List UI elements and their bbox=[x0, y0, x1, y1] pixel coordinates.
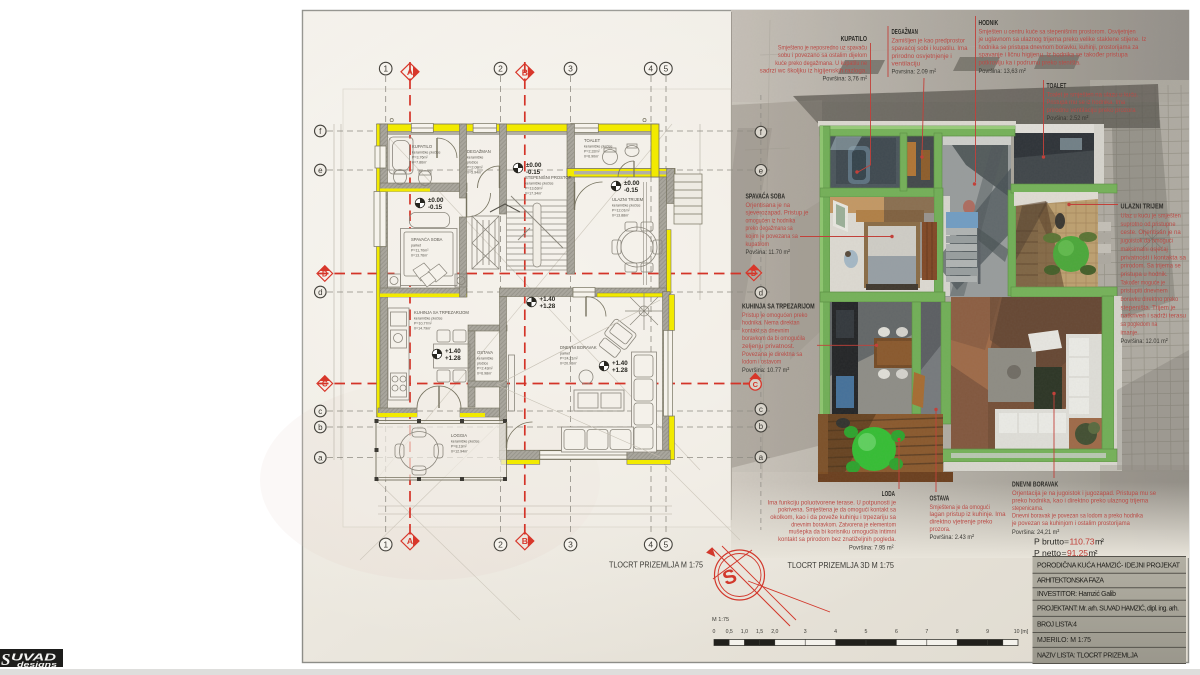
svg-text:Orjentacija je na jugoistok i: Orjentacija je na jugoistok i jugozapad.… bbox=[1012, 490, 1156, 497]
svg-text:preko hodnika, kao i direktno: preko hodnika, kao i direktno preko ulaz… bbox=[1012, 497, 1148, 504]
svg-text:DNEVNI BORAVAK: DNEVNI BORAVAK bbox=[1012, 480, 1059, 489]
svg-text:KUPATILO: KUPATILO bbox=[412, 144, 433, 149]
svg-text:4: 4 bbox=[834, 629, 837, 635]
svg-text:d: d bbox=[318, 288, 322, 297]
svg-text:LODA: LODA bbox=[882, 489, 896, 498]
svg-text:a: a bbox=[759, 453, 764, 462]
svg-text:m²: m² bbox=[1095, 537, 1104, 547]
svg-text:kupatilom: kupatilom bbox=[746, 241, 770, 248]
svg-text:boravkom da bi omogućila: boravkom da bi omogućila bbox=[742, 335, 805, 342]
svg-text:potkrovlju ka i podrumu preko: potkrovlju ka i podrumu preko steništa. bbox=[979, 60, 1081, 67]
svg-text:sa pogledom na: sa pogledom na bbox=[1121, 321, 1158, 328]
svg-text:±0.00: ±0.00 bbox=[428, 197, 444, 204]
svg-text:sobu i povezano sa ostalim dij: sobu i povezano sa ostalim dijelom bbox=[778, 52, 867, 59]
svg-text:stepenicama.: stepenicama. bbox=[1012, 505, 1043, 512]
svg-text:LOGGIA: LOGGIA bbox=[451, 433, 467, 438]
svg-text:jugoistok da omogući: jugoistok da omogući bbox=[1120, 238, 1174, 245]
svg-text:5: 5 bbox=[664, 540, 669, 550]
svg-text:pristupiti dnevnem: pristupiti dnevnem bbox=[1121, 288, 1168, 295]
svg-text:keramičke pločice: keramičke pločice bbox=[412, 150, 441, 154]
svg-text:0=12.94m': 0=12.94m' bbox=[451, 449, 468, 453]
svg-text:+1.28: +1.28 bbox=[612, 367, 628, 374]
svg-text:Površina: 2.43 m²: Površina: 2.43 m² bbox=[930, 534, 975, 541]
svg-text:prirodnu ventilaciju preko pro: prirodnu ventilaciju preko prozora bbox=[1047, 107, 1136, 114]
svg-text:0=6.90m': 0=6.90m' bbox=[584, 154, 599, 158]
svg-text:TLOCRT PRIZEMLJA 3D M 1:75: TLOCRT PRIZEMLJA 3D M 1:75 bbox=[788, 560, 895, 570]
svg-text:prozora.: prozora. bbox=[930, 526, 951, 533]
svg-text:c: c bbox=[318, 407, 322, 416]
svg-text:pločice: pločice bbox=[477, 361, 488, 365]
svg-text:pokrivena. Smještena je da omo: pokrivena. Smještena je da omogući konta… bbox=[778, 507, 896, 514]
svg-text:2: 2 bbox=[498, 64, 503, 74]
svg-text:Pristup je omogućen preko: Pristup je omogućen preko bbox=[742, 312, 808, 319]
svg-text:Površina: 12.01 m²: Površina: 12.01 m² bbox=[1121, 338, 1169, 345]
svg-text:B: B bbox=[522, 68, 528, 78]
svg-text:B: B bbox=[522, 536, 528, 546]
svg-text:PROJEKTANT: Mr. arh. SUVAD HAM: PROJEKTANT: Mr. arh. SUVAD HAMZIĆ, dipl.… bbox=[1037, 603, 1179, 612]
svg-text:Smještena je da omogući: Smještena je da omogući bbox=[930, 504, 991, 511]
svg-text:hodnika. Nema direktan: hodnika. Nema direktan bbox=[742, 320, 800, 327]
svg-text:-0.15: -0.15 bbox=[624, 187, 639, 194]
svg-text:5: 5 bbox=[865, 629, 868, 635]
svg-text:HODNIK: HODNIK bbox=[979, 18, 999, 27]
svg-text:3: 3 bbox=[804, 629, 807, 635]
svg-text:1,0: 1,0 bbox=[741, 629, 748, 635]
svg-text:Povšina: 2.52 m²: Povšina: 2.52 m² bbox=[1047, 115, 1090, 122]
svg-text:Smješteno je neposredno uz spa: Smješteno je neposredno uz spavaču bbox=[778, 44, 867, 51]
svg-text:dnevnim boravkom. Zatvorena je: dnevnim boravkom. Zatvorena je elementom bbox=[791, 521, 896, 528]
svg-text:natkriven i sadrži terasu: natkriven i sadrži terasu bbox=[1121, 313, 1187, 320]
svg-text:Površina: 10.77 m²: Površina: 10.77 m² bbox=[742, 367, 790, 374]
svg-text:OSTAVA: OSTAVA bbox=[930, 494, 950, 503]
svg-text:P=8,13m²: P=8,13m² bbox=[451, 444, 467, 448]
svg-text:0=6.98m': 0=6.98m' bbox=[477, 371, 492, 375]
svg-text:4: 4 bbox=[648, 540, 653, 550]
svg-text:Orjentisana je na: Orjentisana je na bbox=[746, 202, 791, 209]
svg-text:P=3,76m²: P=3,76m² bbox=[412, 155, 428, 159]
svg-text:Ima funkciju poluotvorene tera: Ima funkciju poluotvorene terase. U potp… bbox=[768, 499, 897, 506]
svg-text:prirodno osvjetnjenje i: prirodno osvjetnjenje i bbox=[892, 53, 953, 60]
svg-text:P=13,63m²: P=13,63m² bbox=[525, 186, 543, 190]
svg-text:P=24,21m²: P=24,21m² bbox=[560, 356, 578, 360]
svg-text:1,5: 1,5 bbox=[756, 629, 763, 635]
svg-text:sjeverozapad. Pristup je: sjeverozapad. Pristup je bbox=[746, 210, 809, 217]
svg-text:lagan pristup iz kuhinje. Ima: lagan pristup iz kuhinje. Ima bbox=[930, 511, 1006, 518]
svg-text:kontakt sa prirodom bez znatiž: kontakt sa prirodom bez znatiželjnih pog… bbox=[778, 536, 896, 543]
svg-text:DEGAŽMAN: DEGAŽMAN bbox=[892, 27, 918, 36]
svg-text:0: 0 bbox=[713, 629, 716, 635]
svg-text:keramičke pločice: keramičke pločice bbox=[612, 203, 641, 207]
svg-text:Površina: 24,21 m²: Površina: 24,21 m² bbox=[1012, 529, 1060, 536]
svg-text:je povezan sa kuhinjom i ostal: je povezan sa kuhinjom i ostalim prostor… bbox=[1011, 520, 1130, 527]
svg-text:A: A bbox=[407, 67, 413, 77]
svg-text:+1.28: +1.28 bbox=[540, 303, 556, 310]
svg-text:Povšina: 11.70 m²: Povšina: 11.70 m² bbox=[746, 249, 791, 256]
svg-text:INVESTITOR: Hamzić Galib: INVESTITOR: Hamzić Galib bbox=[1037, 591, 1116, 598]
svg-text:je uglavnom sa ulaznog trijema: je uglavnom sa ulaznog trijema preko vel… bbox=[978, 36, 1147, 43]
svg-text:DNEVNI BORAVAK: DNEVNI BORAVAK bbox=[560, 345, 597, 350]
svg-text:kontakt sa dnevnim: kontakt sa dnevnim bbox=[742, 327, 789, 334]
svg-text:kuće preko degažmana. U kupati: kuće preko degažmana. U kupatilu ne bbox=[775, 60, 867, 67]
svg-text:prirodom. Sa trijema se: prirodom. Sa trijema se bbox=[1121, 263, 1181, 270]
svg-text:keramičke pločice: keramičke pločice bbox=[451, 439, 480, 443]
svg-text:S: S bbox=[1, 650, 10, 669]
svg-text:ULAZNI TRIJEM: ULAZNI TRIJEM bbox=[612, 197, 644, 202]
svg-text:MJERILO: M 1:75: MJERILO: M 1:75 bbox=[1037, 637, 1091, 644]
svg-text:0,5: 0,5 bbox=[726, 629, 733, 635]
svg-text:P=10,77m²: P=10,77m² bbox=[414, 321, 432, 325]
svg-text:Dnevni boravak je povezan sa l: Dnevni boravak je povezan sa lodom a pre… bbox=[1012, 513, 1143, 520]
svg-text:C: C bbox=[322, 380, 328, 389]
svg-text:=: = bbox=[1064, 537, 1069, 547]
svg-text:direktno vjetrenje preko: direktno vjetrenje preko bbox=[930, 519, 993, 526]
svg-text:0=20.96m': 0=20.96m' bbox=[560, 361, 577, 365]
svg-text:KUPATILO: KUPATILO bbox=[841, 34, 868, 43]
svg-text:SPAVAĆA SOBA: SPAVAĆA SOBA bbox=[411, 237, 443, 242]
svg-text:lodom i ostavom: lodom i ostavom bbox=[742, 359, 782, 366]
svg-text:mušepka da bi korisniku omoguć: mušepka da bi korisniku omogućila intimn… bbox=[789, 529, 897, 536]
svg-text:+1.40: +1.40 bbox=[540, 296, 556, 303]
svg-text:3: 3 bbox=[568, 540, 573, 550]
svg-text:5: 5 bbox=[664, 64, 669, 74]
svg-text:sadrzi wc školjku iz higijensk: sadrzi wc školjku iz higijenskih razloga… bbox=[760, 68, 867, 75]
svg-text:8: 8 bbox=[956, 629, 959, 635]
svg-text:6: 6 bbox=[895, 629, 898, 635]
svg-text:C: C bbox=[753, 380, 759, 389]
svg-text:1: 1 bbox=[383, 540, 388, 550]
svg-text:keramičke pločice: keramičke pločice bbox=[525, 181, 554, 185]
svg-text:±0.00: ±0.00 bbox=[526, 162, 542, 169]
svg-text:A: A bbox=[407, 536, 413, 546]
svg-text:0=14.79m': 0=14.79m' bbox=[414, 326, 431, 330]
svg-text:9: 9 bbox=[986, 629, 989, 635]
svg-text:P=12,01m²: P=12,01m² bbox=[612, 208, 630, 212]
svg-text:stepeništa. Trijem je: stepeništa. Trijem je bbox=[1121, 304, 1176, 311]
svg-text:7: 7 bbox=[925, 629, 928, 635]
svg-text:pristupa u hodnik.: pristupa u hodnik. bbox=[1121, 271, 1168, 278]
svg-text:c: c bbox=[759, 405, 763, 414]
svg-text:0=13.76m': 0=13.76m' bbox=[411, 253, 428, 257]
svg-text:d: d bbox=[759, 289, 763, 298]
svg-text:parket: parket bbox=[560, 351, 570, 355]
svg-text:omogućen iz hodnika: omogućen iz hodnika bbox=[746, 217, 796, 224]
svg-text:keramičke: keramičke bbox=[467, 155, 483, 159]
svg-text:0=17.34m': 0=17.34m' bbox=[525, 191, 542, 195]
svg-text:BROJ LISTA:4: BROJ LISTA:4 bbox=[1037, 622, 1077, 629]
svg-text:2,0: 2,0 bbox=[771, 629, 778, 635]
svg-text:10 [m]: 10 [m] bbox=[1014, 629, 1029, 635]
svg-text:±0.00: ±0.00 bbox=[624, 180, 640, 187]
svg-text:Također moguće je: Također moguće je bbox=[1121, 279, 1166, 286]
svg-text:boravku direktno preko: boravku direktno preko bbox=[1121, 296, 1179, 303]
svg-text:TOALET: TOALET bbox=[1047, 81, 1067, 90]
svg-text:e: e bbox=[759, 166, 764, 175]
svg-text:ULAZNI TRIJEM: ULAZNI TRIJEM bbox=[1121, 202, 1164, 211]
svg-text:P brutto: P brutto bbox=[1034, 537, 1064, 547]
svg-text:DEGAŽMAN: DEGAŽMAN bbox=[467, 149, 491, 154]
svg-text:2: 2 bbox=[498, 540, 503, 550]
svg-text:-0.15: -0.15 bbox=[428, 204, 443, 211]
svg-text:+1.40: +1.40 bbox=[612, 360, 628, 367]
svg-text:pločice: pločice bbox=[467, 160, 478, 164]
svg-text:P=2,32m²: P=2,32m² bbox=[584, 149, 600, 153]
svg-text:keramičke pločice: keramičke pločice bbox=[414, 316, 443, 320]
svg-text:NAZIV LISTA: TLOCRT PRIZEMLJA: NAZIV LISTA: TLOCRT PRIZEMLJA bbox=[1037, 653, 1138, 660]
svg-text:okolkom, kao i da poveže kuhin: okolkom, kao i da poveže kuhinju i trpez… bbox=[770, 514, 896, 521]
svg-text:+1.40: +1.40 bbox=[445, 348, 461, 355]
svg-text:keramičke: keramičke bbox=[477, 356, 493, 360]
svg-text:KUHINJA SA TRPEZARIJOM: KUHINJA SA TRPEZARIJOM bbox=[414, 310, 469, 315]
svg-text:maksimalni osjećaj: maksimalni osjećaj bbox=[1121, 246, 1169, 253]
svg-text:designs: designs bbox=[17, 662, 57, 669]
svg-text:spavanje i ličnu higijenu. Iz: spavanje i ličnu higijenu. Iz hodnika se… bbox=[979, 52, 1128, 59]
svg-text:0=5.94m': 0=5.94m' bbox=[467, 170, 482, 174]
svg-text:privatnosti i kontakta sa: privatnosti i kontakta sa bbox=[1121, 254, 1187, 261]
svg-text:b: b bbox=[759, 422, 764, 431]
svg-text:TOALET: TOALET bbox=[584, 138, 601, 143]
svg-text:3: 3 bbox=[568, 64, 573, 74]
svg-text:Povrsina: 2.09 m²: Povrsina: 2.09 m² bbox=[892, 69, 937, 76]
svg-text:110.73: 110.73 bbox=[1070, 537, 1095, 547]
svg-text:Površina: 3,76 m²: Površina: 3,76 m² bbox=[823, 76, 868, 83]
svg-text:PORODIČNA KUĆA HAMZIĆ- IDEJNI: PORODIČNA KUĆA HAMZIĆ- IDEJNI PROJEKAT bbox=[1037, 561, 1181, 570]
svg-text:P=11,70m²: P=11,70m² bbox=[411, 248, 429, 252]
svg-text:Smješten u centru kuće sa step: Smješten u centru kuće sa stepenišnim pr… bbox=[979, 28, 1136, 35]
svg-text:STEPENIŠNI PROSTOR: STEPENIŠNI PROSTOR bbox=[525, 175, 572, 180]
svg-text:+1.28: +1.28 bbox=[445, 355, 461, 362]
svg-text:P=2.43m²: P=2.43m² bbox=[477, 366, 493, 370]
svg-text:a: a bbox=[318, 454, 323, 463]
svg-text:KUHINJA SA TRPEZARIJOM: KUHINJA SA TRPEZARIJOM bbox=[742, 302, 815, 311]
svg-text:Toalet je smješten na ulazu u: Toalet je smješten na ulazu u kuću. bbox=[1047, 91, 1139, 98]
svg-text:SPAVAĆA SOBA: SPAVAĆA SOBA bbox=[746, 192, 786, 201]
svg-text:Površina: 7.95 m²: Površina: 7.95 m² bbox=[849, 544, 894, 551]
svg-text:ceste. Orjentisan je na: ceste. Orjentisan je na bbox=[1121, 229, 1181, 236]
svg-text:D: D bbox=[751, 269, 757, 278]
svg-text:0=7.86m': 0=7.86m' bbox=[412, 160, 427, 164]
svg-text:spavaćoj sobi i kupatilu. Ima: spavaćoj sobi i kupatilu. Ima bbox=[892, 45, 968, 52]
svg-text:ventilaciju: ventilaciju bbox=[892, 61, 921, 68]
svg-text:Ulaz u kuću je smješten: Ulaz u kuću je smješten bbox=[1121, 213, 1181, 220]
svg-text:Pristupa mu se iz hodnika. Ima: Pristupa mu se iz hodnika. Ima bbox=[1047, 99, 1126, 106]
svg-text:0=13.88m': 0=13.88m' bbox=[612, 213, 629, 217]
svg-text:hodnika se pristupa dnevnom bo: hodnika se pristupa dnevnom boravku, kuh… bbox=[979, 44, 1139, 51]
svg-text:TLOCRT PRIZEMLJA M 1:75: TLOCRT PRIZEMLJA M 1:75 bbox=[609, 560, 703, 570]
svg-text:preko degažmana sa: preko degažmana sa bbox=[746, 225, 793, 232]
svg-text:imanje.: imanje. bbox=[1121, 329, 1139, 336]
svg-text:e: e bbox=[318, 166, 323, 175]
svg-text:OSTAVA: OSTAVA bbox=[477, 350, 493, 355]
svg-text:kojim je povezana sa: kojim je povezana sa bbox=[746, 233, 799, 240]
svg-text:Povezana je direktna sa: Povezana je direktna sa bbox=[742, 351, 802, 358]
svg-text:Površina: 13,63 m²: Površina: 13,63 m² bbox=[979, 68, 1027, 75]
svg-text:4: 4 bbox=[648, 64, 653, 74]
svg-text:ARHITEKTONSKA FAZA: ARHITEKTONSKA FAZA bbox=[1037, 577, 1104, 584]
svg-text:suprotno od pristupne: suprotno od pristupne bbox=[1121, 221, 1176, 228]
svg-text:D: D bbox=[322, 270, 328, 279]
svg-text:P=2.08m²: P=2.08m² bbox=[467, 165, 483, 169]
svg-text:parket: parket bbox=[411, 243, 421, 247]
svg-text:b: b bbox=[318, 423, 323, 432]
svg-text:1: 1 bbox=[383, 64, 388, 74]
svg-text:M 1:75: M 1:75 bbox=[712, 617, 729, 623]
svg-text:zeljenju privatnost.: zeljenju privatnost. bbox=[742, 343, 795, 350]
svg-text:keramičke pločice: keramičke pločice bbox=[584, 144, 613, 148]
svg-text:Zamišljen je kao predprostor: Zamišljen je kao predprostor bbox=[892, 37, 966, 44]
